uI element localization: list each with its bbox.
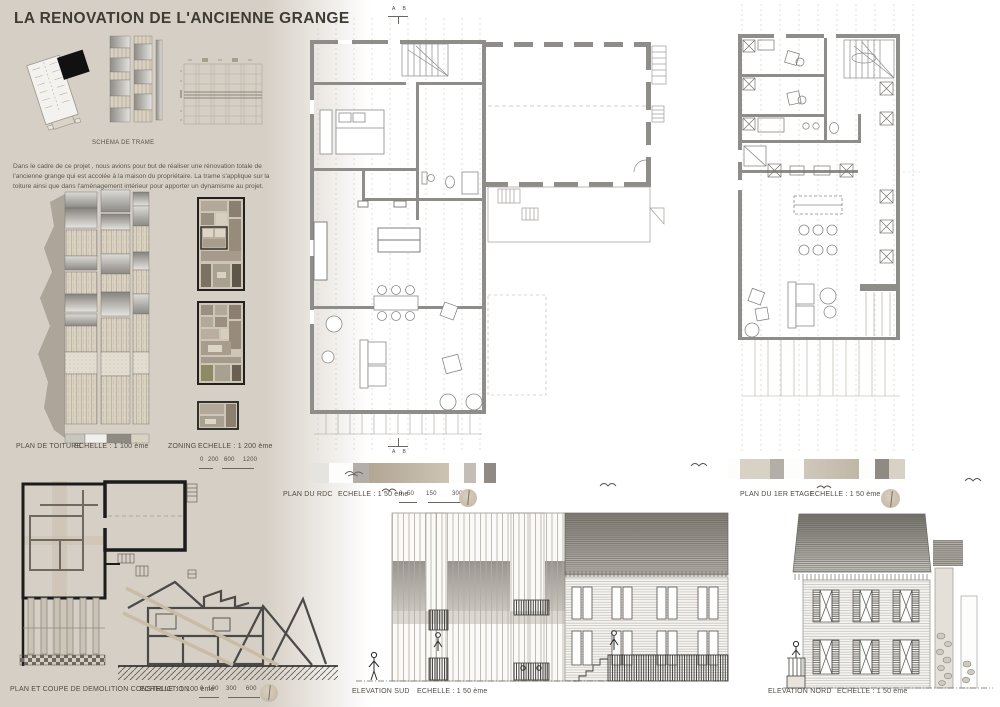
demolition-scalebar-2 bbox=[228, 697, 260, 698]
zoning-plan-etage bbox=[198, 198, 244, 290]
swatch bbox=[859, 459, 875, 479]
bird-icon bbox=[381, 486, 397, 494]
trame-label: SCHEMA DE TRAME bbox=[92, 140, 154, 146]
rdc-floor-plan-drawing bbox=[298, 10, 693, 460]
rdc-tick-0: 0 bbox=[399, 491, 403, 497]
bird-icon bbox=[599, 480, 617, 489]
rdc-tick-2: 150 bbox=[426, 491, 437, 497]
elevation-nord-label: ELEVATION NORD bbox=[768, 688, 832, 695]
swatch bbox=[464, 463, 476, 483]
elevation-sud-drawing bbox=[348, 503, 735, 693]
rdc-tick-1: 50 bbox=[407, 491, 414, 497]
roof-plan-drawing bbox=[20, 186, 170, 448]
zoning-scale: ECHELLE : 1 200 ème bbox=[198, 443, 273, 450]
toiture-scale: ECHELLE : 1 100 ème bbox=[74, 443, 149, 450]
swatch bbox=[889, 459, 905, 479]
swatch bbox=[369, 463, 449, 483]
bird-icon bbox=[964, 475, 982, 484]
toiture-label: PLAN DE TOITURE bbox=[16, 443, 81, 450]
zoning-tick-1: 200 bbox=[208, 457, 219, 463]
bird-icon bbox=[690, 460, 708, 469]
bird-icon bbox=[816, 483, 832, 491]
site-diagram bbox=[22, 50, 106, 132]
demolition-tick-1: 100 bbox=[208, 686, 219, 692]
etage-material-strip bbox=[728, 459, 905, 479]
swatch bbox=[770, 459, 784, 479]
swatch bbox=[476, 463, 484, 483]
zoning-scalebar-1 bbox=[199, 468, 213, 469]
rdc-scale: ECHELLE : 1 50 ème bbox=[338, 491, 409, 498]
demolition-tick-0: 0 bbox=[200, 686, 204, 692]
swatch bbox=[804, 459, 859, 479]
trame-strip-diagram bbox=[108, 34, 164, 134]
demolition-scalebar-1 bbox=[199, 697, 219, 698]
zoning-scalebar-2 bbox=[222, 468, 254, 469]
elevation-nord-scale: ECHELLE : 1 50 ème bbox=[837, 688, 908, 695]
elevation-sud-scale: ECHELLE : 1 50 ème bbox=[417, 688, 488, 695]
zoning-tick-2: 600 bbox=[224, 457, 235, 463]
zoning-plan-combles bbox=[198, 402, 238, 429]
demolition-north-arrow bbox=[260, 684, 278, 702]
swatch bbox=[484, 463, 496, 483]
swatch bbox=[728, 459, 740, 479]
zoning-label: ZONING bbox=[168, 443, 196, 450]
zoning-tick-3: 1200 bbox=[243, 457, 257, 463]
etage-floor-plan-drawing bbox=[728, 0, 923, 456]
swatch bbox=[784, 459, 804, 479]
etage-label: PLAN DU 1ER ETAGE bbox=[740, 491, 814, 498]
zoning-plan-rdc bbox=[198, 302, 244, 384]
swatch bbox=[875, 459, 889, 479]
demolition-tick-2: 300 bbox=[226, 686, 237, 692]
demolition-plan-section-drawing bbox=[8, 478, 343, 690]
etage-scale: ECHELLE : 1 50 ème bbox=[810, 491, 881, 498]
grid-schema-diagram bbox=[180, 56, 266, 128]
elevation-nord-drawing bbox=[765, 506, 995, 696]
zoning-tick-0: 0 bbox=[200, 457, 204, 463]
elevation-sud-label: ELEVATION SUD bbox=[352, 688, 410, 695]
bird-icon bbox=[344, 468, 364, 478]
roof-shadow bbox=[38, 194, 65, 438]
swatch bbox=[740, 459, 770, 479]
demolition-tick-3: 600 bbox=[246, 686, 257, 692]
swatch bbox=[449, 463, 464, 483]
presentation-board: LA RENOVATION DE L'ANCIENNE GRANGE bbox=[0, 0, 1000, 707]
